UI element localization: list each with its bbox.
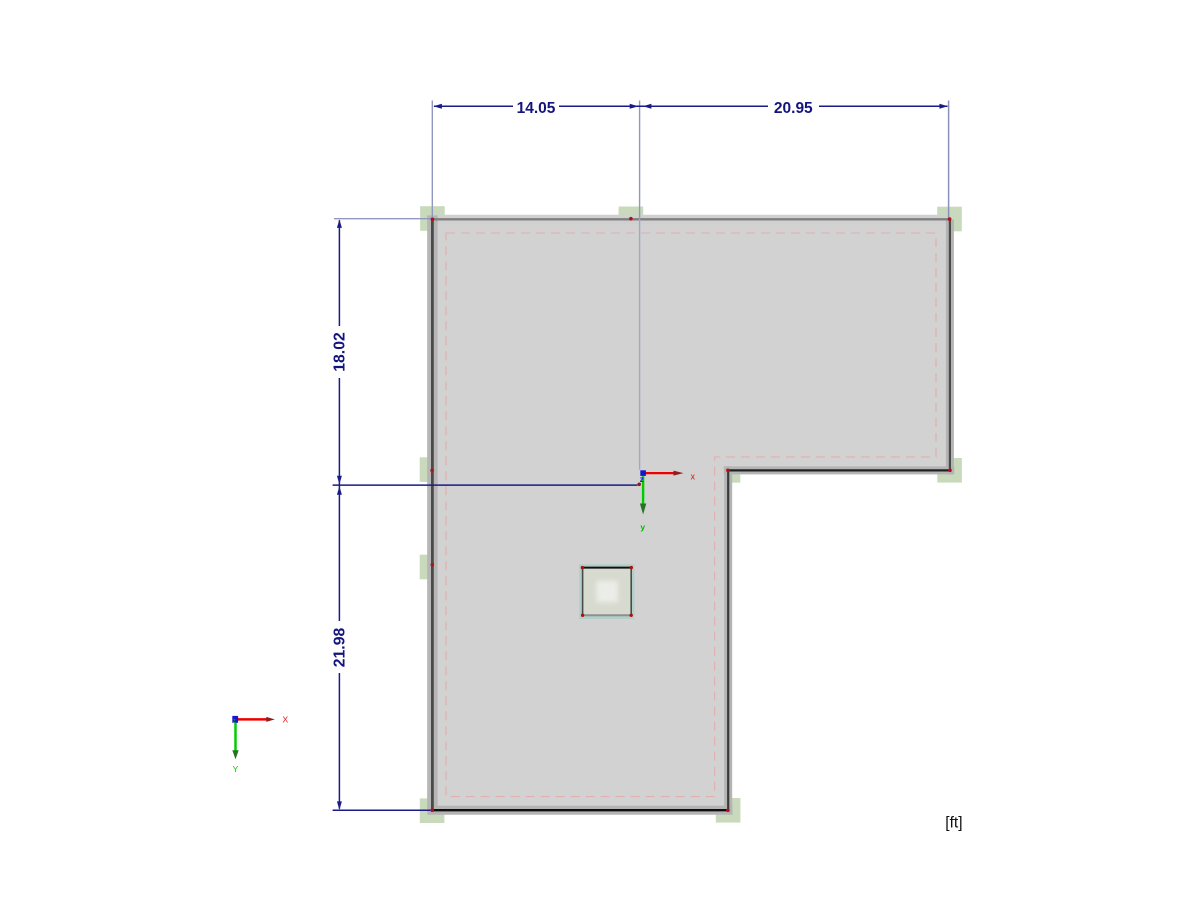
svg-text:z: z: [233, 719, 236, 725]
svg-text:x: x: [691, 472, 696, 482]
svg-text:20.95: 20.95: [774, 100, 813, 117]
svg-text:18.02: 18.02: [332, 332, 349, 372]
svg-text:y: y: [640, 522, 645, 532]
svg-text:14.05: 14.05: [517, 100, 556, 117]
svg-text:X: X: [282, 714, 288, 724]
svg-text:21.98: 21.98: [332, 628, 349, 668]
svg-text:[ft]: [ft]: [945, 814, 962, 831]
svg-text:Y: Y: [233, 764, 239, 774]
